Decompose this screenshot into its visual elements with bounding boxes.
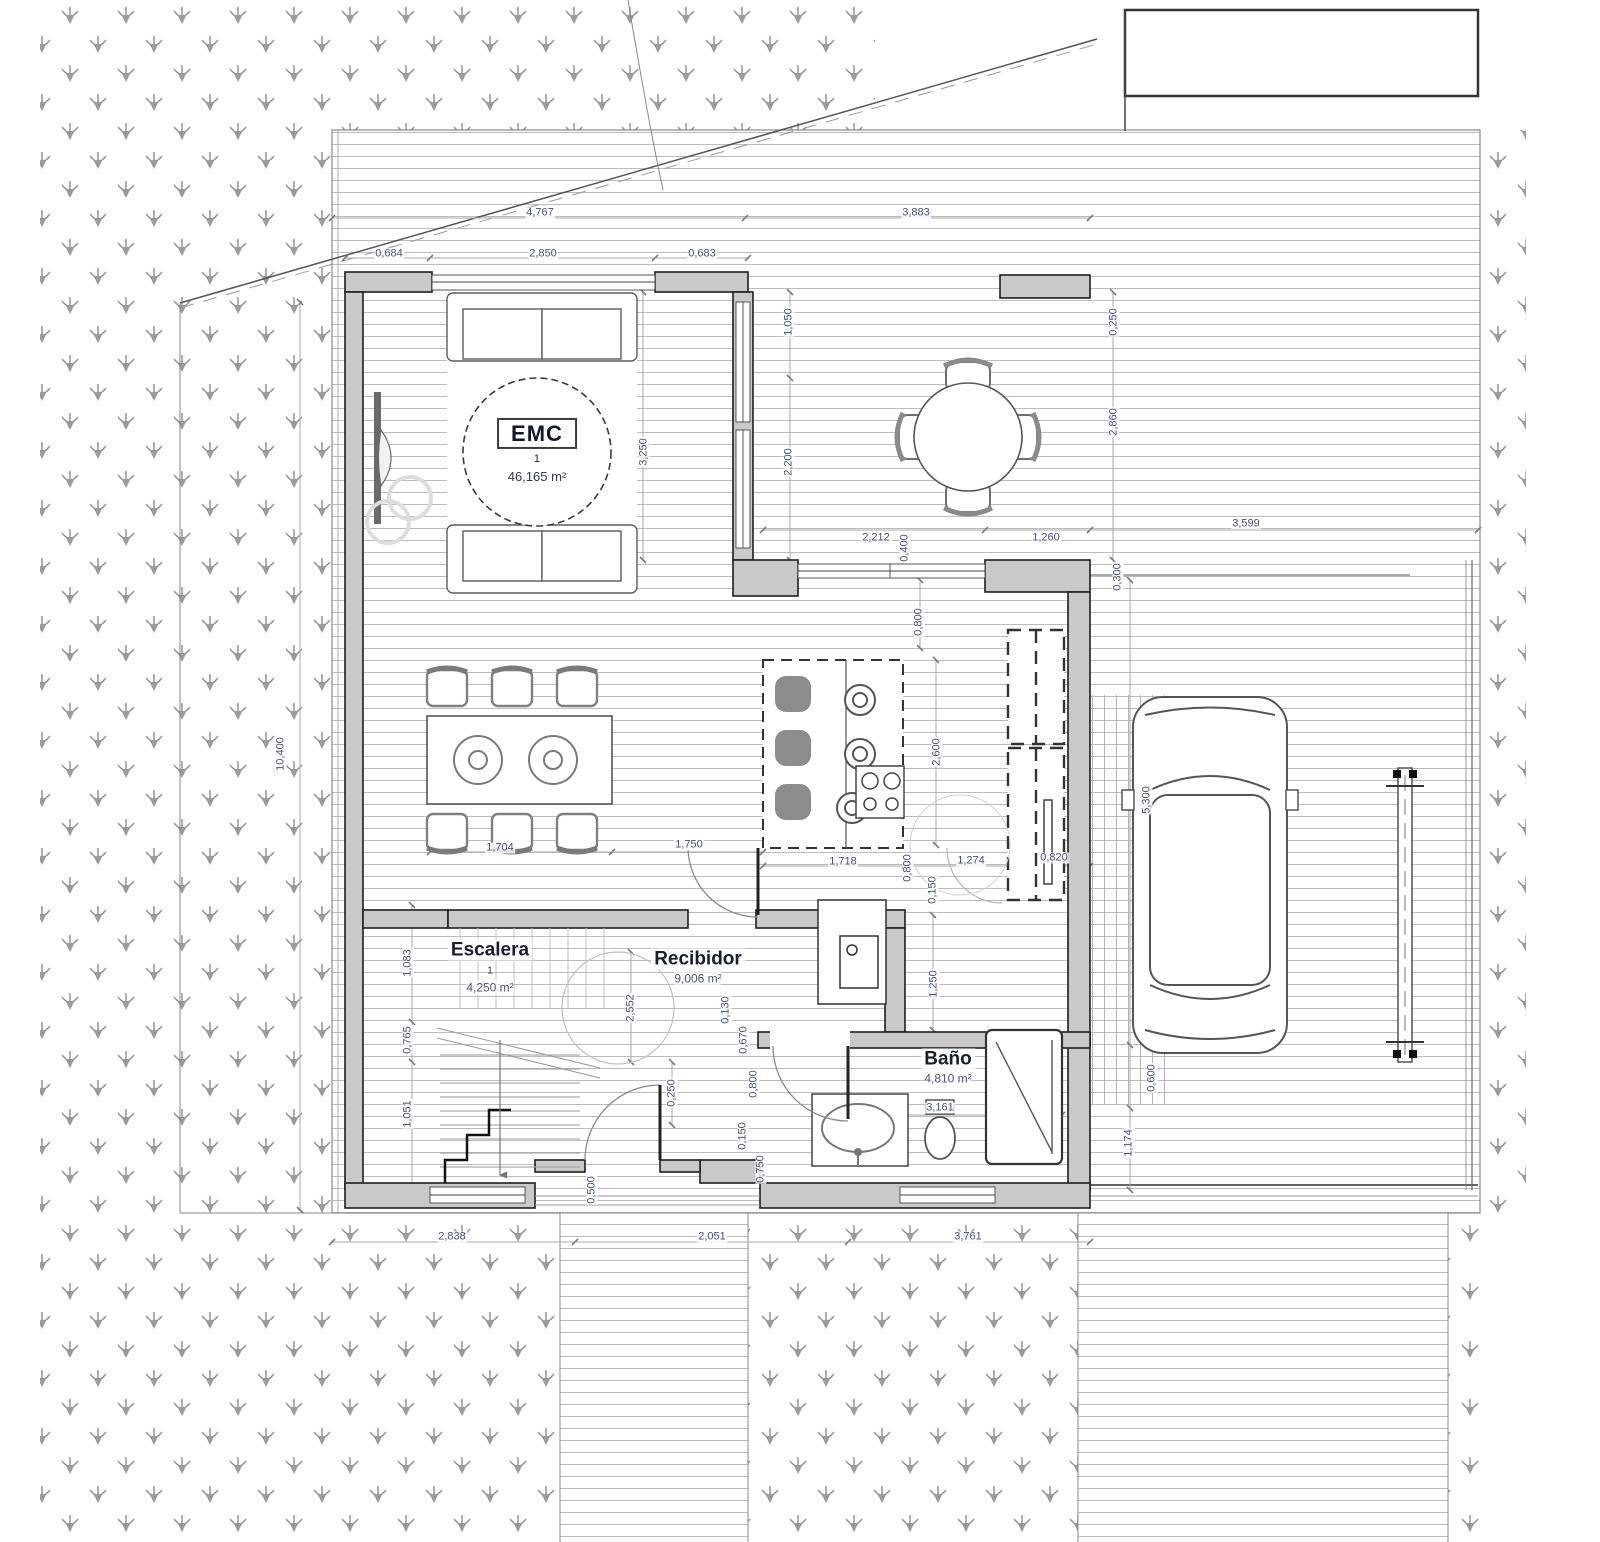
escalera-name: Escalera <box>448 939 532 960</box>
dimension-label: 2,051 <box>697 1232 727 1243</box>
bath-sink <box>812 1094 908 1166</box>
dimension-label: 2,850 <box>528 249 558 260</box>
dimension-label: 0,600 <box>1147 1063 1158 1093</box>
floor-plan-canvas: 4,7673,8830,6842,8500,6831,0500,2502,860… <box>0 0 1600 1542</box>
dimension-label: 1,260 <box>1031 533 1061 544</box>
recibidor-name: Recibidor <box>651 948 745 969</box>
dimension-label: 1,274 <box>956 856 986 867</box>
terrace-window-2 <box>736 430 750 548</box>
escalera-number: 1 <box>487 966 493 977</box>
room-label-bano: Baño 4,810 m² <box>921 1048 975 1087</box>
sofa-bottom <box>447 525 637 593</box>
room-label-escalera: Escalera 1 4,250 m² <box>448 939 532 996</box>
neighbor-building-outline <box>1125 10 1478 96</box>
bath-window <box>900 1187 995 1203</box>
living-window <box>432 275 655 290</box>
cooktop <box>856 766 904 818</box>
dimension-label: 0,820 <box>1039 853 1069 864</box>
dimension-label: 0,250 <box>1109 307 1120 337</box>
dimension-label: 10,400 <box>276 736 287 772</box>
dimension-label: 0,683 <box>687 249 717 260</box>
dimension-label: 0,670 <box>739 1025 750 1055</box>
dimension-label: 3,599 <box>1231 519 1261 530</box>
sofa-top <box>447 293 637 361</box>
dimension-label: 0,300 <box>1113 562 1124 592</box>
dimension-label: 0,500 <box>587 1175 598 1205</box>
dimension-label: 0,130 <box>721 995 732 1025</box>
room-label-recibidor: Recibidor 9,006 m² <box>651 948 745 987</box>
car <box>1122 697 1298 1053</box>
dimension-label: 0,150 <box>738 1121 749 1151</box>
emc-name: EMC <box>497 418 577 449</box>
dimension-label: 3,883 <box>901 208 931 219</box>
bath-door-opening <box>770 1031 850 1049</box>
dimension-label: 2,200 <box>784 447 795 477</box>
dimension-label: 0,800 <box>749 1069 760 1099</box>
floor-plan-svg <box>0 0 1600 1542</box>
terrace-window-1 <box>736 302 750 422</box>
dimension-label: 3,761 <box>953 1232 983 1243</box>
recibidor-area: 9,006 m² <box>674 972 721 986</box>
dimension-label: 3,161 <box>925 1103 955 1114</box>
kitchen-island <box>763 660 904 848</box>
dimension-label: 2,600 <box>932 737 943 767</box>
shower <box>986 1030 1062 1164</box>
dimension-label: 0,800 <box>914 607 925 637</box>
dining-table-set <box>427 668 612 852</box>
dimension-label: 3,250 <box>639 437 650 467</box>
car-mirror-right <box>1286 790 1298 810</box>
dimension-label: 2,860 <box>1109 407 1120 437</box>
dimension-label: 1,704 <box>485 843 515 854</box>
dimension-label: 0,684 <box>374 249 404 260</box>
dimension-label: 2,552 <box>626 993 637 1023</box>
dimension-label: 1,250 <box>929 969 940 999</box>
bano-name: Baño <box>921 1048 975 1069</box>
emc-number: 1 <box>534 453 540 465</box>
wardrobe-handle <box>1044 800 1052 884</box>
dimension-label: 0,400 <box>900 533 911 563</box>
bano-area: 4,810 m² <box>924 1072 971 1086</box>
dimension-label: 1,718 <box>828 857 858 868</box>
dimension-label: 4,767 <box>525 208 555 219</box>
emc-area: 46,165 m² <box>508 469 567 484</box>
dimension-label: 1,750 <box>674 840 704 851</box>
dimension-label: 5,300 <box>1142 785 1153 815</box>
dimension-label: 0,150 <box>928 875 939 905</box>
stairs-window <box>430 1187 525 1203</box>
dimension-label: 1,083 <box>403 948 414 978</box>
sliding-glass-door <box>798 564 985 578</box>
dimension-label: 1,174 <box>1124 1128 1135 1158</box>
dimension-label: 1,050 <box>784 307 795 337</box>
dimension-label: 0,800 <box>903 853 914 883</box>
entry-cabinet <box>818 900 886 1004</box>
dimension-label: 0,765 <box>403 1025 414 1055</box>
dimension-label: 1,051 <box>403 1099 414 1129</box>
bar-stools <box>775 676 811 820</box>
dimension-label: 2,838 <box>437 1232 467 1243</box>
escalera-area: 4,250 m² <box>466 981 513 995</box>
dimension-label: 0,750 <box>756 1154 767 1184</box>
dimension-label: 2,212 <box>861 533 891 544</box>
car-mirror-left <box>1122 790 1134 810</box>
room-label-emc: EMC 1 46,165 m² <box>497 418 577 486</box>
dimension-label: 0,250 <box>667 1078 678 1108</box>
